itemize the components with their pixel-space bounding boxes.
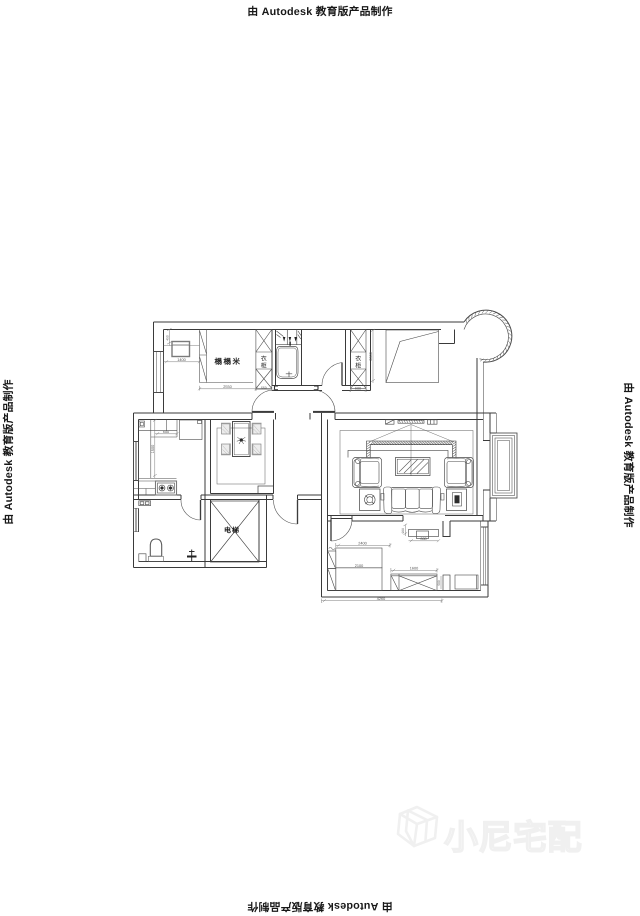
svg-text:柜: 柜 (261, 362, 267, 370)
svg-text:450: 450 (165, 335, 169, 341)
svg-text:600: 600 (355, 387, 361, 391)
svg-text:3300: 3300 (369, 352, 373, 360)
svg-text:1500: 1500 (151, 445, 155, 453)
svg-text:2400: 2400 (358, 542, 366, 546)
svg-text:550: 550 (261, 386, 267, 390)
svg-text:600: 600 (163, 430, 169, 434)
svg-text:电梯: 电梯 (224, 526, 240, 535)
svg-text:2550: 2550 (223, 385, 231, 389)
svg-text:900: 900 (401, 528, 405, 534)
svg-text:榻榻米: 榻榻米 (214, 357, 242, 366)
svg-text:4260: 4260 (377, 597, 385, 601)
svg-text:2100: 2100 (355, 564, 363, 568)
svg-text:衣: 衣 (355, 355, 361, 363)
svg-text:500: 500 (437, 580, 441, 586)
svg-text:1600: 1600 (410, 567, 418, 571)
svg-text:柜: 柜 (355, 362, 361, 370)
svg-text:衣: 衣 (261, 355, 267, 363)
svg-text:1400: 1400 (177, 358, 185, 362)
svg-text:600: 600 (420, 537, 426, 541)
